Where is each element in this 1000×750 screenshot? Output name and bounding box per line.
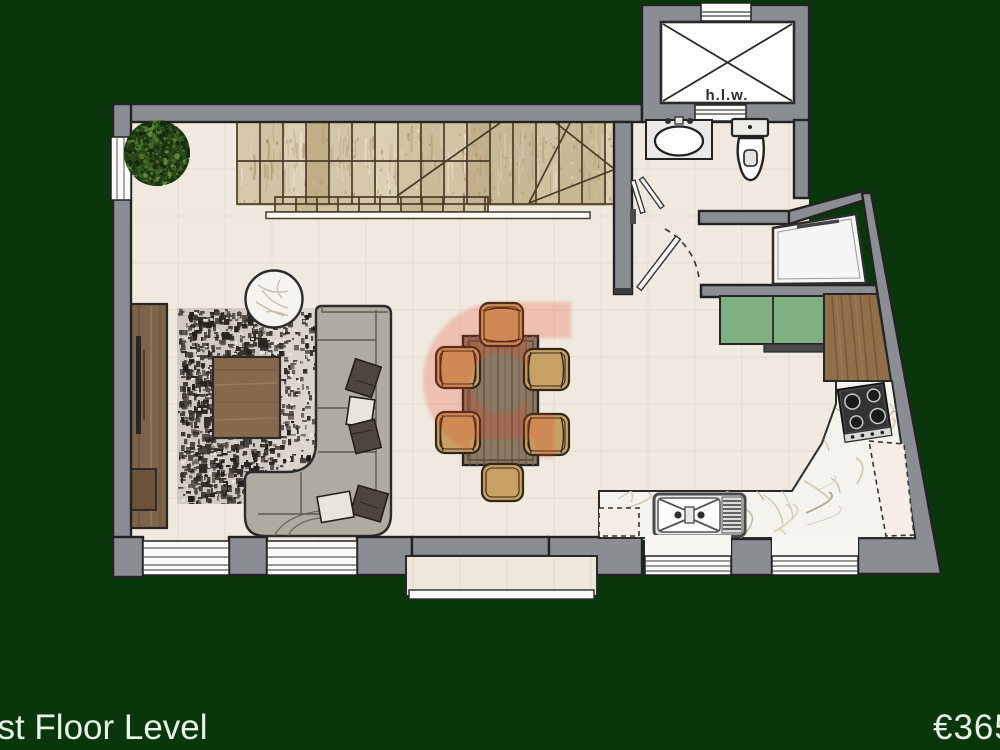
svg-text:1st Floor Level: 1st Floor Level <box>0 708 208 747</box>
svg-text:€365: €365 <box>933 708 1000 747</box>
svg-text:h.l.w.: h.l.w. <box>706 87 749 104</box>
